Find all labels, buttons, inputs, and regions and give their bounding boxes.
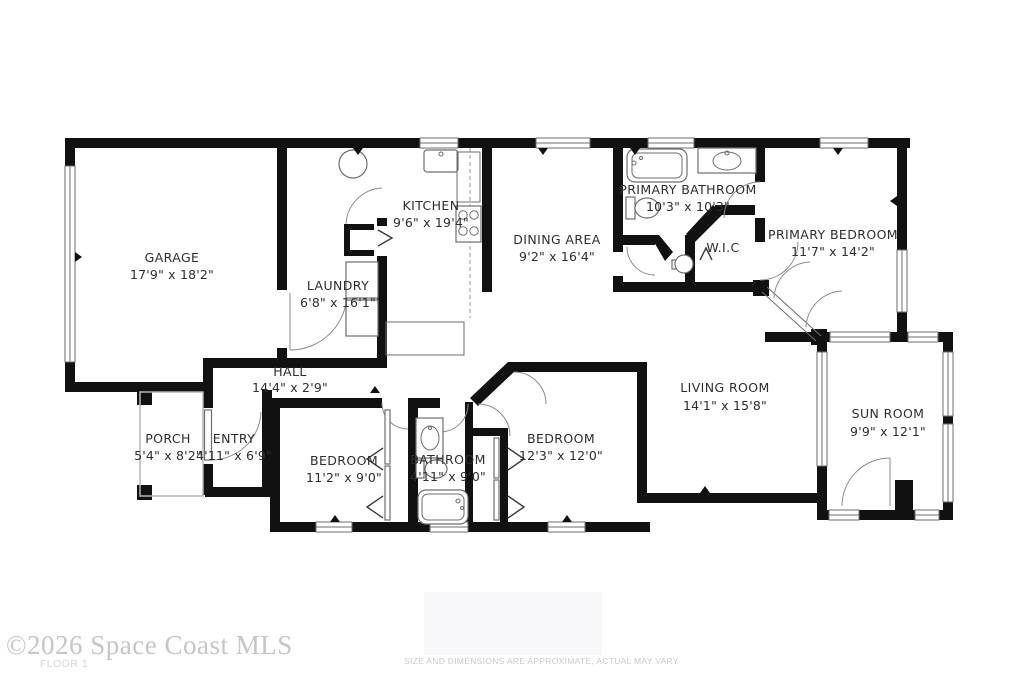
window-sunroom-bottom-2	[915, 510, 939, 520]
watermark-box	[424, 592, 602, 655]
dims-kitchen: 9'6" x 19'4"	[393, 215, 469, 230]
label-laundry: LAUNDRY	[307, 278, 369, 293]
wall-living-bottom	[640, 493, 823, 503]
floor-plan-drawing: GARAGE 17'9" x 18'2" LAUNDRY 6'8" x 16'1…	[0, 0, 1024, 683]
label-kitchen: KITCHEN	[403, 198, 460, 213]
wall-toilet-diagonal	[650, 235, 673, 261]
pedestal-sink-icon	[672, 255, 693, 273]
dims-bedroom2: 12'3" x 12'0"	[519, 448, 603, 463]
dims-dining: 9'2" x 16'4"	[519, 249, 595, 264]
primary-vanity-sink-icon	[698, 148, 756, 173]
label-bathroom: BATHROOM	[410, 452, 486, 467]
dims-hall: 14'4" x 2'9"	[252, 380, 328, 395]
label-entry: ENTRY	[213, 431, 255, 446]
window-primary-bath	[648, 138, 694, 148]
opening-wic	[755, 242, 765, 280]
disclaimer-text: SIZE AND DIMENSIONS ARE APPROXIMATE, ACT…	[404, 656, 679, 666]
laundry-tub-icon	[339, 150, 367, 178]
garage-door	[65, 166, 75, 362]
label-hall: HALL	[273, 364, 306, 379]
window-primary-bedroom	[820, 138, 868, 148]
wall-kitchen-dining	[482, 138, 492, 292]
label-dining: DINING AREA	[513, 232, 600, 247]
dims-laundry: 6'8" x 16'1"	[300, 295, 376, 310]
window-sunroom-top-2	[908, 332, 938, 342]
wall-sunroom-door-block	[895, 480, 913, 510]
wall-pantry-bottom	[344, 250, 374, 256]
wall-slider-cap-top	[753, 280, 769, 296]
label-primary-bathroom: PRIMARY BATHROOM	[619, 182, 756, 197]
label-primary-bedroom: PRIMARY BEDROOM	[768, 227, 898, 242]
label-bedroom1: BEDROOM	[310, 453, 378, 468]
dims-bedroom1: 11'2" x 9'0"	[306, 470, 382, 485]
opening-toilet-room	[613, 252, 623, 276]
wall-entry-bottom	[205, 487, 272, 497]
window-right-wall	[897, 250, 907, 312]
window-sunroom-right-1	[943, 352, 953, 416]
primary-bathtub-icon	[627, 149, 687, 182]
floor-label: FLOOR 1	[40, 659, 88, 670]
label-bedroom2: BEDROOM	[527, 431, 595, 446]
label-garage: GARAGE	[145, 250, 200, 265]
window-sunroom-left	[817, 352, 827, 466]
wall-toilet-room	[613, 235, 655, 245]
window-bedroom1	[316, 522, 352, 532]
kitchen-island-icon	[386, 322, 464, 355]
wall-bedroom2-diagonal	[470, 362, 516, 406]
label-sun-room: SUN ROOM	[852, 406, 925, 421]
window-dining	[536, 138, 590, 148]
dims-primary-bedroom: 11'7" x 14'2"	[791, 244, 875, 259]
kitchen-sink-icon	[424, 150, 458, 172]
wall-bedroom2-top	[508, 362, 647, 372]
dims-porch: 5'4" x 8'2"	[134, 448, 202, 463]
label-wic: W.I.C	[706, 240, 739, 255]
copyright-text: ©2026 Space Coast MLS	[6, 630, 293, 661]
kitchen-laundry-door-arc	[346, 188, 382, 224]
window-sunroom-right-2	[943, 424, 953, 502]
dims-bathroom: 4'11" x 9'0"	[410, 469, 486, 484]
dims-garage: 17'9" x 18'2"	[130, 267, 214, 282]
dims-entry: 4'11" x 6'9"	[196, 448, 272, 463]
window-sunroom-top-1	[830, 332, 890, 342]
wall-hall-bottom-a	[270, 398, 382, 408]
opening-garage-laundry	[277, 290, 287, 348]
bathroom-door-arc	[440, 404, 468, 432]
label-porch: PORCH	[145, 431, 191, 446]
floorplan-page: GARAGE 17'9" x 18'2" LAUNDRY 6'8" x 16'1…	[0, 0, 1024, 683]
dims-sun-room: 9'9" x 12'1"	[850, 424, 926, 439]
bedroom2-door-arc-1	[514, 372, 546, 404]
window-sunroom-bottom-1	[829, 510, 859, 520]
wall-bedroom2-left	[500, 428, 508, 532]
sunroom-door	[842, 458, 890, 506]
kitchen-cabinet-icon	[457, 152, 480, 202]
label-living-room: LIVING ROOM	[680, 380, 769, 395]
window-bedroom2	[548, 522, 585, 532]
window-kitchen	[420, 138, 458, 148]
wall-entry-right	[262, 390, 272, 497]
dims-primary-bathroom: 10'3" x 10'3"	[646, 199, 730, 214]
dims-living-room: 14'1" x 15'8"	[683, 398, 767, 413]
bathroom-tub-icon	[418, 490, 468, 524]
patio-slider	[762, 262, 842, 341]
toilet-room-door-arc	[627, 247, 655, 275]
wall-bedroom2-right	[637, 362, 647, 503]
